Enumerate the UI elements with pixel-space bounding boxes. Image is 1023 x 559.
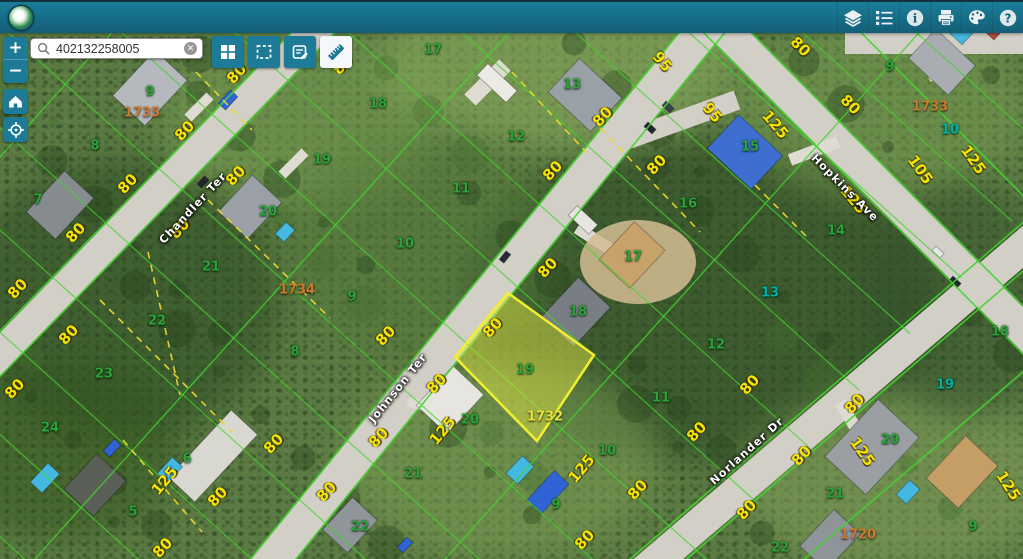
zoom-control: + − [3,37,28,83]
grid-icon [219,43,237,61]
layers-icon [842,8,864,28]
measure-button[interactable] [320,36,352,68]
search-icon [37,42,50,55]
svg-text:?: ? [1005,11,1012,25]
basemap-palette-button[interactable] [961,2,992,33]
info-icon: i [905,8,925,28]
aerial-map-graphics [0,0,1023,559]
ruler-icon [326,42,346,62]
info-button[interactable]: i [899,2,930,33]
map-canvas[interactable]: 7891918171312112021222324109865161514131… [0,0,1023,559]
top-toolbar: i [0,0,1023,33]
grid-view-button[interactable] [212,36,244,68]
zoom-in-button[interactable]: + [3,37,28,60]
zoom-out-button[interactable]: − [3,60,28,83]
parcel-search-box: ✕ [30,38,203,59]
print-icon [936,8,956,28]
county-gis-logo [8,5,34,31]
legend-list-button[interactable] [868,2,899,33]
gis-parcel-viewer: 7891918171312112021222324109865161514131… [0,0,1023,559]
help-button[interactable]: ? [992,2,1023,33]
my-location-button[interactable] [3,117,28,142]
palette-icon [967,8,987,28]
topbar-icon-group: i [837,2,1023,33]
notes-edit-icon [291,43,309,61]
legend-list-icon [874,8,894,28]
search-input[interactable] [54,41,184,57]
marquee-icon [255,43,273,61]
clear-search-icon[interactable]: ✕ [184,42,197,55]
print-button[interactable] [930,2,961,33]
locate-crosshair-icon [7,121,25,139]
home-extent-button[interactable] [3,89,28,114]
svg-text:i: i [913,11,918,25]
marquee-select-button[interactable] [248,36,280,68]
map-tools [212,36,352,68]
help-icon: ? [998,8,1018,28]
layers-button[interactable] [837,2,868,33]
notes-edit-button[interactable] [284,36,316,68]
home-icon [7,93,24,110]
